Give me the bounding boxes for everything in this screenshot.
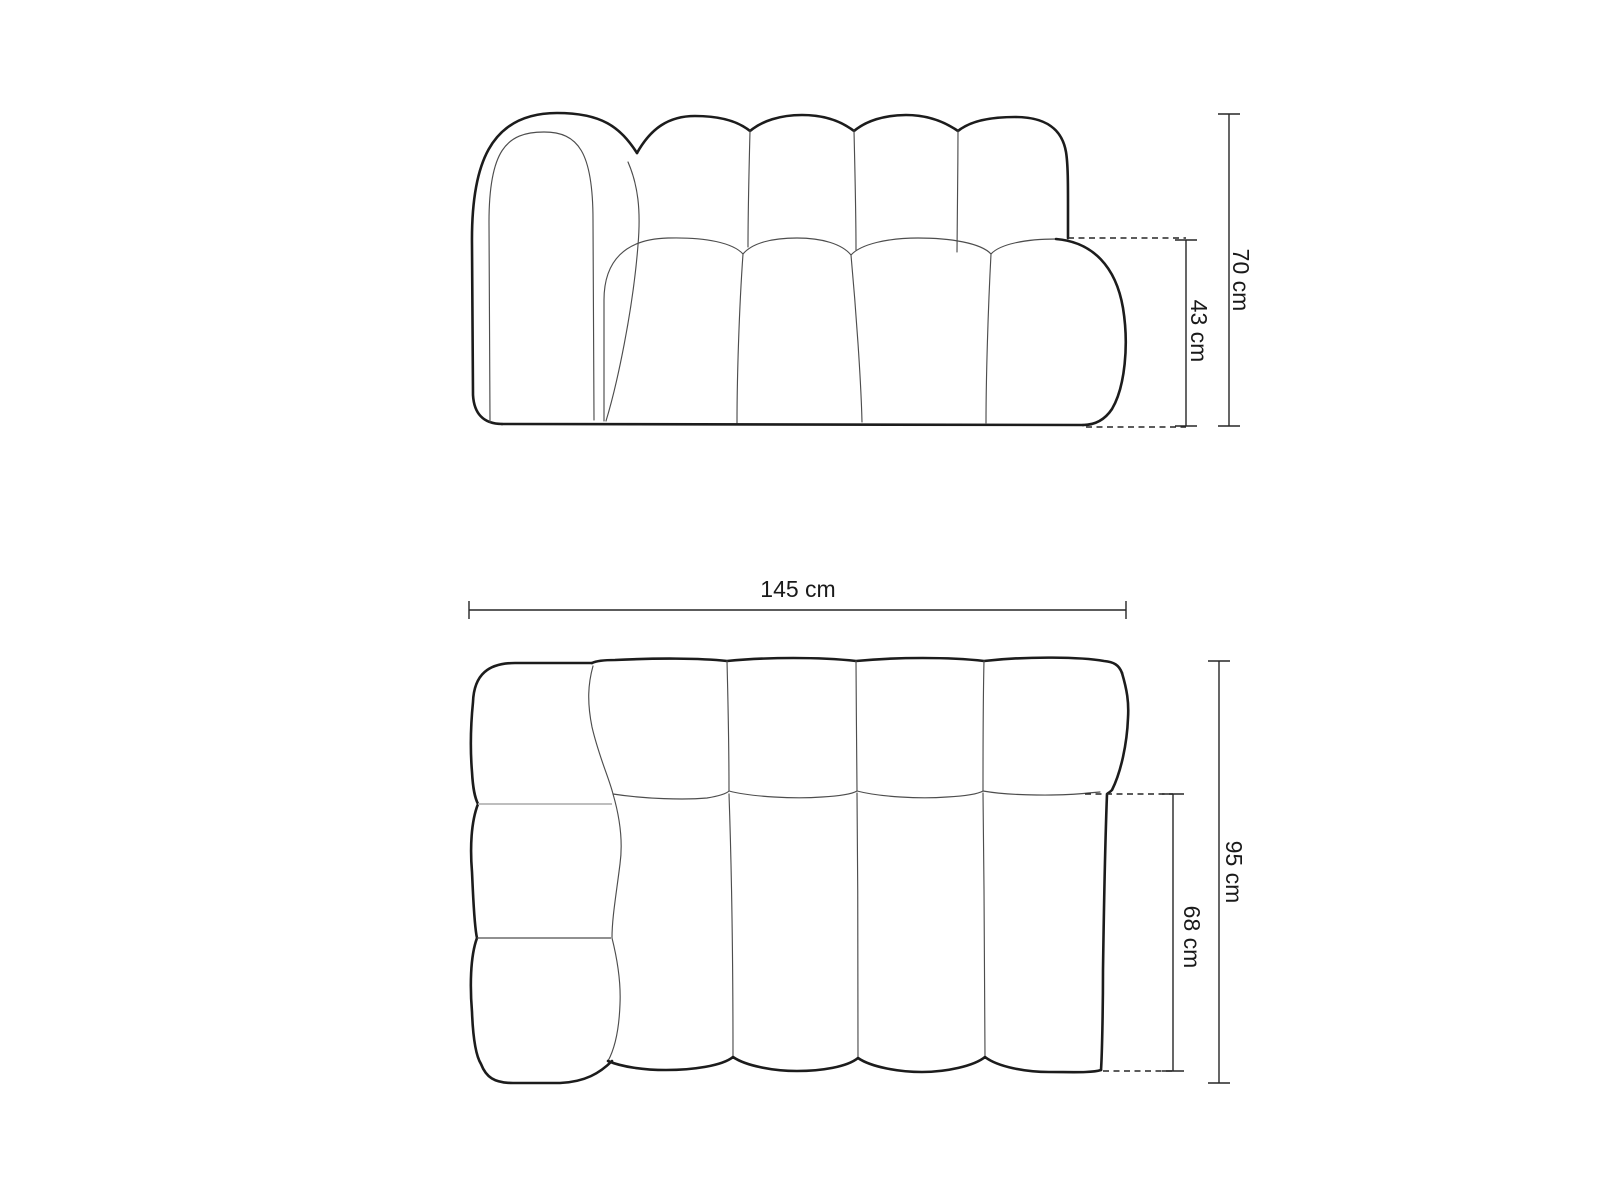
top-seat-front-scallops: [608, 1057, 1101, 1072]
top-width-dimension-line: [469, 601, 1126, 619]
front-seat-right-outline: [1056, 239, 1126, 425]
top-seat-separators: [729, 793, 985, 1058]
front-armrest-inner-line: [489, 132, 594, 422]
top-armrest-crease-line: [589, 666, 621, 1061]
front-back-cushion-separators: [748, 131, 958, 252]
top-armrest-outline: [471, 663, 612, 1083]
diagram-canvas: 43 cm 70 cm 145 cm 68 cm: [0, 0, 1600, 1200]
front-baseline: [502, 424, 1083, 425]
top-back-edge-outline: [592, 658, 1122, 673]
front-armrest-outline: [472, 113, 637, 424]
top-right-edge-outline: [1101, 673, 1128, 1070]
front-seat-separators: [737, 254, 991, 423]
top-seat-depth-label: 68 cm: [1179, 906, 1205, 969]
front-seat-height-label: 43 cm: [1186, 300, 1212, 363]
top-view: 145 cm 68 cm 95 cm: [469, 576, 1247, 1083]
top-width-label: 145 cm: [760, 576, 835, 602]
top-back-separators: [727, 661, 984, 791]
front-view: 43 cm 70 cm: [472, 113, 1254, 427]
dimension-diagram: 43 cm 70 cm 145 cm 68 cm: [0, 0, 1600, 1200]
front-back-cushions-outline: [637, 115, 1068, 238]
top-total-depth-label: 95 cm: [1221, 841, 1247, 904]
front-armrest-crease-line: [606, 162, 639, 421]
front-total-height-label: 70 cm: [1228, 249, 1254, 312]
